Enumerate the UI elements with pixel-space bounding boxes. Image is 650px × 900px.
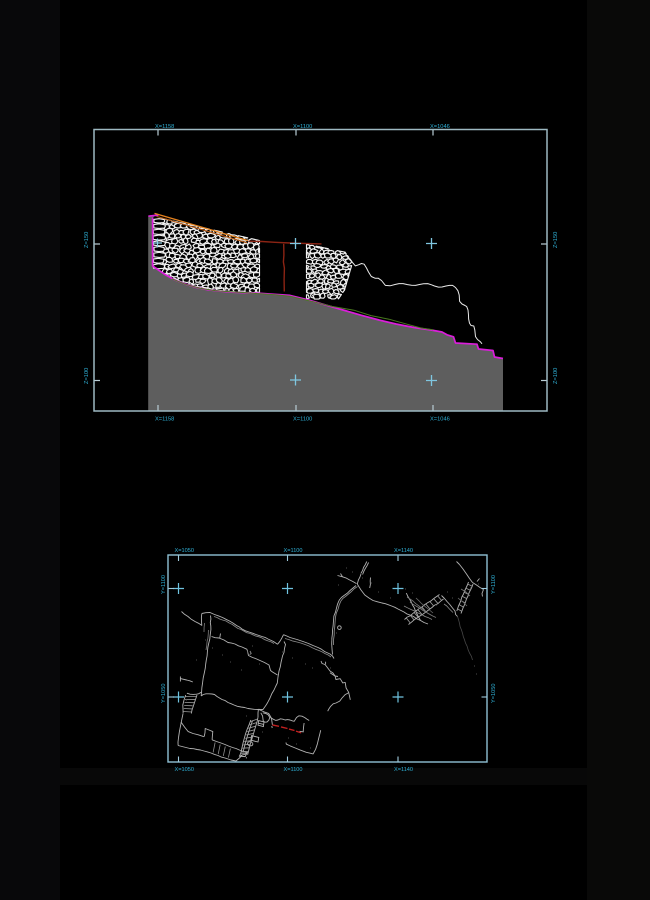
svg-text:X=1140: X=1140	[394, 767, 413, 773]
svg-text:Z=150: Z=150	[553, 232, 559, 248]
svg-text:X=1158: X=1158	[155, 417, 174, 423]
svg-text:Y=1050: Y=1050	[491, 684, 497, 703]
svg-text:Y=1050: Y=1050	[161, 684, 167, 703]
svg-text:X=1100: X=1100	[293, 124, 312, 130]
svg-text:Y=1100: Y=1100	[161, 575, 167, 594]
svg-text:Z=100: Z=100	[84, 368, 90, 384]
svg-text:X=1158: X=1158	[155, 124, 174, 130]
svg-text:Y=1100: Y=1100	[491, 575, 497, 594]
svg-text:X=1100: X=1100	[284, 548, 303, 554]
svg-text:X=1050: X=1050	[175, 548, 194, 554]
svg-text:X=1046: X=1046	[430, 417, 450, 423]
svg-text:X=1050: X=1050	[175, 767, 194, 773]
svg-text:X=1100: X=1100	[284, 767, 303, 773]
svg-text:X=1046: X=1046	[430, 124, 450, 130]
svg-text:X=1100: X=1100	[293, 417, 312, 423]
svg-text:X=1140: X=1140	[394, 548, 413, 554]
svg-text:Z=100: Z=100	[553, 368, 559, 384]
svg-text:Z=150: Z=150	[84, 232, 90, 248]
